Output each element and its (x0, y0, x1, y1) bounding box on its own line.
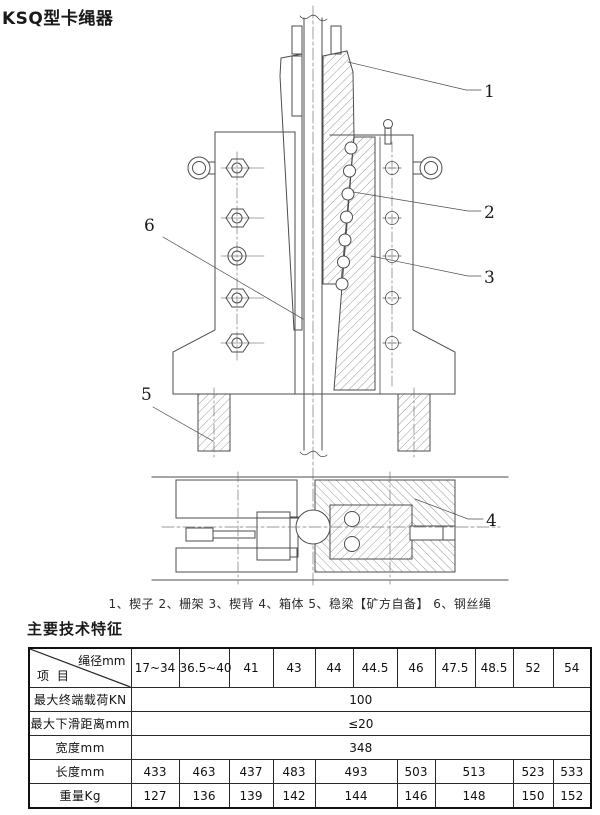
spec-cell: 437 (229, 760, 273, 784)
spec-cell: 142 (273, 784, 315, 809)
callout-3: 3 (484, 268, 495, 288)
spec-cell: 136 (179, 784, 229, 809)
box-body-item-4 (162, 472, 500, 584)
parts-legend: 1、楔子 2、栅架 3、楔背 4、箱体 5、稳梁【矿方自备】 6、钢丝绳 (0, 595, 600, 612)
corner-header-cell: 绳径mm 项 目 (29, 648, 131, 688)
spec-cell: 433 (131, 760, 179, 784)
top-bolt (384, 120, 393, 145)
col-header: 54 (553, 648, 591, 688)
spec-cell: 463 (179, 760, 229, 784)
row-label: 宽度mm (29, 736, 131, 760)
corner-label-rope-diameter: 绳径mm (78, 652, 125, 669)
row-label: 长度mm (29, 760, 131, 784)
spec-cell: 150 (513, 784, 553, 809)
table-header-row: 绳径mm 项 目 17~34 36.5~40 41 43 44 44.5 46 … (29, 648, 591, 688)
table-row-width: 宽度mm 348 (29, 736, 591, 760)
callout-1: 1 (484, 82, 495, 102)
spec-cell: ≤20 (131, 712, 591, 736)
col-header: 36.5~40 (179, 648, 229, 688)
table-row-max-slip: 最大下滑距离mm ≤20 (29, 712, 591, 736)
row-label: 最大终端载荷KN (29, 688, 131, 712)
spec-cell: 483 (273, 760, 315, 784)
left-eye-bolt (188, 157, 215, 179)
callout-4: 4 (486, 511, 497, 531)
callout-6: 6 (144, 216, 155, 236)
col-header: 47.5 (435, 648, 475, 688)
spec-cell: 533 (553, 760, 591, 784)
spec-cell: 148 (435, 784, 513, 809)
spec-cell: 503 (397, 760, 435, 784)
right-bolt-column (383, 142, 402, 388)
spec-cell: 127 (131, 784, 179, 809)
left-wedge (280, 54, 302, 330)
col-header: 17~34 (131, 648, 179, 688)
col-header: 44.5 (353, 648, 397, 688)
spec-cell: 493 (315, 760, 397, 784)
spec-cell: 523 (513, 760, 553, 784)
spec-cell: 100 (131, 688, 591, 712)
row-label: 重量Kg (29, 784, 131, 809)
table-row-max-load: 最大终端载荷KN 100 (29, 688, 591, 712)
stabilizing-beams-item-5 (198, 388, 430, 458)
technical-drawing: 1 2 3 4 5 6 (0, 0, 600, 592)
row-label: 最大下滑距离mm (29, 712, 131, 736)
col-header: 44 (315, 648, 353, 688)
spec-table: 绳径mm 项 目 17~34 36.5~40 41 43 44 44.5 46 … (28, 647, 592, 809)
section-heading: 主要技术特征 (27, 618, 123, 639)
col-header: 52 (513, 648, 553, 688)
body-outline (173, 132, 455, 394)
right-eye-bolt (413, 157, 442, 179)
left-bolt-column (221, 152, 264, 362)
col-header: 41 (229, 648, 273, 688)
spec-cell: 146 (397, 784, 435, 809)
col-header: 46 (397, 648, 435, 688)
corner-label-item: 项 目 (37, 667, 71, 684)
table-row-length: 长度mm 433 463 437 483 493 503 513 523 533 (29, 760, 591, 784)
col-header: 43 (273, 648, 315, 688)
spec-cell: 348 (131, 736, 591, 760)
col-header: 48.5 (475, 648, 513, 688)
table-row-weight: 重量Kg 127 136 139 142 144 146 148 150 152 (29, 784, 591, 809)
callout-5: 5 (141, 385, 152, 405)
callout-2: 2 (484, 203, 495, 223)
spec-cell: 144 (315, 784, 397, 809)
spec-cell: 152 (553, 784, 591, 809)
spec-cell: 513 (435, 760, 513, 784)
spec-cell: 139 (229, 784, 273, 809)
